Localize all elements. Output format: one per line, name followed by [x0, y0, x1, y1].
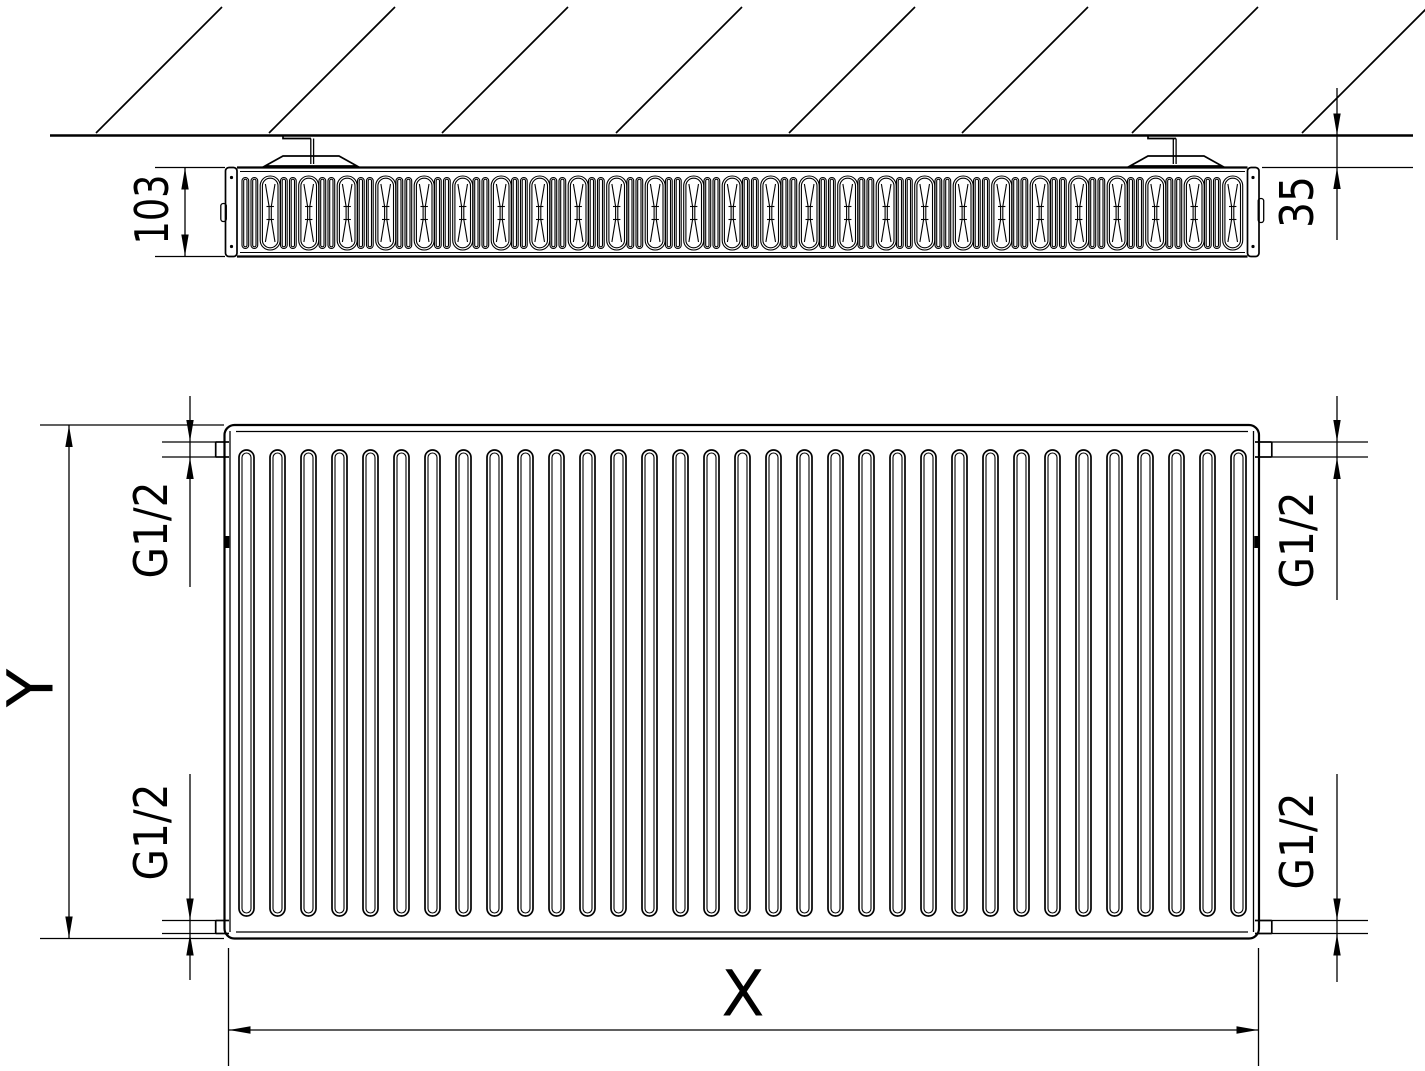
fin-weld-line [1234, 184, 1238, 207]
water-channel-oval [743, 178, 750, 249]
corrugation-outer [735, 450, 750, 916]
corrugation-inner [521, 453, 530, 913]
top-view-right-endcap [1248, 168, 1264, 257]
fin-oval-inner [1186, 178, 1202, 248]
water-channel-oval-inner [1206, 179, 1209, 247]
wall-clearance-label: 35 [1270, 176, 1324, 228]
fin-weld-line [1035, 184, 1039, 207]
corrugation-inner [335, 453, 344, 913]
fin-oval [953, 176, 973, 250]
corrugation-inner [242, 453, 251, 913]
water-channel-oval-inner [244, 179, 247, 247]
corrugation-inner [800, 453, 809, 913]
water-channel-oval [974, 178, 981, 249]
fin-weld-line [766, 184, 770, 207]
fin-oval [1069, 176, 1089, 250]
corrugation-inner [1141, 453, 1150, 913]
corrugation-inner [1203, 453, 1212, 913]
corrugation-outer [239, 450, 254, 916]
width-label: X [721, 958, 764, 1031]
fin-oval [414, 176, 434, 250]
dim-wall-clearance: 35 [1262, 88, 1413, 240]
water-channel-oval-inner [629, 179, 632, 247]
hatch-line [1132, 7, 1258, 133]
fin-oval [530, 176, 550, 250]
fin-oval [1146, 176, 1166, 250]
water-channel-oval-inner [706, 179, 709, 247]
water-channel-oval [1021, 178, 1028, 249]
water-channel-oval [550, 178, 557, 249]
fin-oval-inner [840, 178, 856, 248]
corrugations-group [239, 450, 1246, 916]
water-channel-oval-inner [1052, 179, 1055, 247]
water-channel-oval [358, 178, 365, 249]
fin-weld-line [733, 220, 737, 243]
hatch-line [442, 7, 568, 133]
fin-weld-line [1189, 184, 1193, 207]
fin-weld-line [650, 184, 654, 207]
water-channel-oval-inner [869, 179, 872, 247]
height-label: Y [0, 668, 68, 708]
fin-oval [1184, 176, 1204, 250]
fin-weld-line [650, 220, 654, 243]
fin-weld-line [1041, 184, 1045, 207]
fin-weld-line [958, 184, 962, 207]
fin-oval-inner [378, 178, 394, 248]
fin-weld-line [1080, 184, 1084, 207]
water-channel-oval-inner [1100, 179, 1103, 247]
fin-weld-line [381, 184, 385, 207]
dim-depth: 103 [125, 168, 225, 257]
corrugation-outer [611, 450, 626, 916]
fin-weld-line [1195, 184, 1199, 207]
fin-weld-line [387, 184, 391, 207]
dim-thread-bottom-right: G1/2 [1270, 774, 1368, 982]
water-channel-oval [598, 178, 605, 249]
fin-weld-line [964, 184, 968, 207]
water-channel-oval [251, 178, 258, 249]
fin-oval-inner [686, 178, 702, 248]
water-channel-oval [521, 178, 528, 249]
endcap-outline [1248, 168, 1260, 257]
fin-weld-line [958, 220, 962, 243]
thread-label-bottom-left: G1/2 [124, 784, 178, 881]
corrugation-inner [366, 453, 375, 913]
fin-weld-line [458, 220, 462, 243]
fin-weld-line [843, 184, 847, 207]
water-channel-oval-inner [282, 179, 285, 247]
water-channel-oval-inner [1014, 179, 1017, 247]
water-channel-oval-inner [667, 179, 670, 247]
water-channel-oval-inner [898, 179, 901, 247]
fin-weld-line [502, 184, 506, 207]
corrugation-inner [552, 453, 561, 913]
corrugation-outer [1231, 450, 1246, 916]
water-channel-oval-inner [1177, 179, 1180, 247]
fin-weld-line [1041, 220, 1045, 243]
fin-oval-inner [917, 178, 933, 248]
fin-weld-line [381, 220, 385, 243]
water-channel-oval-inner [860, 179, 863, 247]
water-channel-oval-inner [552, 179, 555, 247]
water-channel-oval [589, 178, 596, 249]
water-channel-oval-inner [599, 179, 602, 247]
fin-weld-line [695, 184, 699, 207]
fin-weld-line [1074, 220, 1078, 243]
fin-oval-inner [647, 178, 663, 248]
fin-weld-line [849, 184, 853, 207]
water-channel-oval [1205, 178, 1212, 249]
fin-weld-line [573, 220, 577, 243]
corrugation-inner [1048, 453, 1057, 913]
dim-width: X [229, 948, 1259, 1066]
corrugation-outer [921, 450, 936, 916]
water-channel-oval [281, 178, 288, 249]
fin-weld-line [1151, 220, 1155, 243]
arrowhead-up [181, 168, 188, 190]
fin-weld-line [310, 184, 314, 207]
fin-oval-inner [1032, 178, 1048, 248]
corrugation-inner [583, 453, 592, 913]
fin-oval [992, 176, 1012, 250]
water-channel-oval [666, 178, 673, 249]
corrugation-outer [363, 450, 378, 916]
fin-oval [761, 176, 781, 250]
water-channel-oval [858, 178, 865, 249]
water-channel-oval [897, 178, 904, 249]
water-channel-oval-inner [398, 179, 401, 247]
fin-oval-inner [493, 178, 509, 248]
fin-weld-line [926, 220, 930, 243]
fin-oval-inner [763, 178, 779, 248]
water-channel-oval [906, 178, 913, 249]
fin-weld-line [1157, 184, 1161, 207]
fin-weld-line [1228, 220, 1232, 243]
arrowhead-down [65, 917, 72, 939]
water-channel-oval-inner [475, 179, 478, 247]
water-channel-oval-inner [937, 179, 940, 247]
hatch-line [269, 7, 395, 133]
water-channel-oval-inner [590, 179, 593, 247]
fin-weld-line [419, 184, 423, 207]
water-channel-oval [1175, 178, 1182, 249]
water-channel-oval [627, 178, 634, 249]
fin-weld-line [1035, 220, 1039, 243]
water-channel-oval [752, 178, 759, 249]
fin-oval [260, 176, 280, 250]
endcap-outline [226, 168, 238, 257]
fin-oval-inner [301, 178, 317, 248]
fin-weld-line [458, 184, 462, 207]
corrugation-outer [642, 450, 657, 916]
corrugation-outer [1169, 450, 1184, 916]
water-channel-oval-inner [821, 179, 824, 247]
fin-weld-line [1112, 220, 1116, 243]
water-channel-oval [1137, 178, 1144, 249]
fin-weld-line [348, 184, 352, 207]
fin-weld-line [612, 220, 616, 243]
fin-weld-line [265, 184, 269, 207]
front-view-radiator-body [225, 425, 1260, 939]
fin-weld-line [1003, 220, 1007, 243]
fin-weld-line [496, 220, 500, 243]
fin-oval-inner [994, 178, 1010, 248]
corrugation-inner [397, 453, 406, 913]
fin-weld-line [772, 220, 776, 243]
arrowhead-down [1333, 114, 1340, 136]
fin-weld-line [804, 220, 808, 243]
water-channel-oval-inner [330, 179, 333, 247]
stub-top-left [216, 442, 229, 457]
water-channel-oval-inner [984, 179, 987, 247]
arrowhead-up [186, 458, 193, 480]
water-channel-oval-inner [359, 179, 362, 247]
fin-weld-line [579, 220, 583, 243]
water-channel-oval [675, 178, 682, 249]
fin-oval [645, 176, 665, 250]
fin-weld-line [387, 220, 391, 243]
fin-weld-line [881, 220, 885, 243]
water-channel-oval [1128, 178, 1135, 249]
fin-weld-line [1003, 184, 1007, 207]
water-channel-oval-inner [561, 179, 564, 247]
corrugation-inner [893, 453, 902, 913]
fin-weld-line [1080, 220, 1084, 243]
endcap-rivet [1251, 176, 1254, 179]
fin-oval-inner [570, 178, 586, 248]
fin-weld-line [1151, 184, 1155, 207]
corrugation-inner [1017, 453, 1026, 913]
fin-oval [684, 176, 704, 250]
corrugation-inner [986, 453, 995, 913]
fin-oval-inner [455, 178, 471, 248]
corrugation-outer [1200, 450, 1215, 916]
fin-weld-line [612, 184, 616, 207]
water-channel-oval-inner [1129, 179, 1132, 247]
corrugation-inner [924, 453, 933, 913]
fin-weld-line [1074, 184, 1078, 207]
corrugation-outer [332, 450, 347, 916]
fin-oval-inner [262, 178, 278, 248]
corrugation-outer [952, 450, 967, 916]
fin-weld-line [727, 220, 731, 243]
corrugation-outer [487, 450, 502, 916]
water-channel-oval [1012, 178, 1019, 249]
corrugation-outer [270, 450, 285, 916]
stub-bottom-left [216, 921, 229, 934]
fin-weld-line [535, 184, 539, 207]
fin-weld-line [573, 184, 577, 207]
fin-weld-line [656, 184, 660, 207]
fin-weld-line [689, 184, 693, 207]
fin-weld-line [425, 220, 429, 243]
corrugation-inner [1079, 453, 1088, 913]
fin-oval-inner [724, 178, 740, 248]
corrugation-outer [301, 450, 316, 916]
water-channel-oval-inner [1091, 179, 1094, 247]
corrugation-outer [549, 450, 564, 916]
water-channel-oval [1166, 178, 1173, 249]
water-channel-oval [1051, 178, 1058, 249]
fin-weld-line [541, 220, 545, 243]
water-channel-oval [405, 178, 412, 249]
water-channel-oval [512, 178, 519, 249]
top-view-left-endcap [221, 168, 237, 257]
fin-weld-line [419, 220, 423, 243]
thread-label-top-right: G1/2 [1270, 492, 1324, 589]
fin-weld-line [535, 220, 539, 243]
water-channel-oval-inner [744, 179, 747, 247]
fin-weld-line [310, 220, 314, 243]
fin-weld-line [887, 220, 891, 243]
fin-weld-line [926, 184, 930, 207]
water-channel-oval-inner [291, 179, 294, 247]
fin-weld-line [342, 220, 346, 243]
corrugation-outer [518, 450, 533, 916]
fin-weld-line [304, 184, 308, 207]
water-channel-oval [983, 178, 990, 249]
fin-weld-line [348, 220, 352, 243]
left-seam-tab [225, 536, 230, 548]
fin-oval [491, 176, 511, 250]
water-channel-oval-inner [253, 179, 256, 247]
water-channel-oval [396, 178, 403, 249]
water-channel-oval [242, 178, 249, 249]
fin-oval [1223, 176, 1243, 250]
fin-oval [1107, 176, 1127, 250]
depth-label: 103 [125, 175, 179, 245]
corrugation-inner [1234, 453, 1243, 913]
fin-weld-line [1118, 220, 1122, 243]
water-channel-oval [713, 178, 720, 249]
fin-weld-line [695, 220, 699, 243]
water-channel-oval-inner [975, 179, 978, 247]
fin-weld-line [502, 220, 506, 243]
water-channel-oval [704, 178, 711, 249]
water-channel-oval [935, 178, 942, 249]
hatch-line [1302, 7, 1425, 133]
fin-oval-inner [955, 178, 971, 248]
fin-weld-line [804, 184, 808, 207]
water-channel-oval-inner [946, 179, 949, 247]
fin-weld-line [772, 184, 776, 207]
fin-oval [453, 176, 473, 250]
fin-oval-inner [339, 178, 355, 248]
fin-oval-inner [416, 178, 432, 248]
right-seam-tab [1254, 536, 1259, 548]
top-view-fin-pattern [242, 176, 1243, 250]
front-view: Y G1/2 G1/2 G1/2 [0, 396, 1368, 1066]
corrugation-inner [738, 453, 747, 913]
fin-weld-line [496, 184, 500, 207]
fin-weld-line [342, 184, 346, 207]
corrugation-outer [1045, 450, 1060, 916]
fin-oval [876, 176, 896, 250]
fin-oval-inner [609, 178, 625, 248]
corrugation-outer [673, 450, 688, 916]
fin-weld-line [579, 184, 583, 207]
corrugation-outer [704, 450, 719, 916]
fin-weld-line [541, 184, 545, 207]
water-channel-oval [1098, 178, 1105, 249]
mounting-bracket-right [1130, 136, 1222, 167]
fin-weld-line [1189, 220, 1193, 243]
water-channel-oval-inner [368, 179, 371, 247]
fin-oval [299, 176, 319, 250]
arrowhead-down [1333, 899, 1340, 921]
water-channel-oval [867, 178, 874, 249]
fin-weld-line [1228, 184, 1232, 207]
water-channel-oval [636, 178, 643, 249]
corrugation-outer [425, 450, 440, 916]
water-channel-oval [944, 178, 951, 249]
fin-oval [915, 176, 935, 250]
corrugation-inner [304, 453, 313, 913]
water-channel-oval-inner [1168, 179, 1171, 247]
fin-oval [337, 176, 357, 250]
fin-weld-line [997, 184, 1001, 207]
fin-weld-line [810, 220, 814, 243]
fin-oval [838, 176, 858, 250]
water-channel-oval-inner [436, 179, 439, 247]
water-channel-oval-inner [830, 179, 833, 247]
water-channel-oval-inner [792, 179, 795, 247]
fin-oval [799, 176, 819, 250]
fin-weld-line [656, 220, 660, 243]
corrugation-outer [456, 450, 471, 916]
arrowhead-down [186, 899, 193, 921]
wall-hatching [96, 7, 1425, 133]
arrowhead-left [229, 1026, 251, 1033]
endcap-rivet [230, 176, 233, 179]
corrugation-outer [580, 450, 595, 916]
hatch-line [962, 7, 1088, 133]
corrugation-outer [1014, 450, 1029, 916]
water-channel-oval [367, 178, 374, 249]
arrowhead-down [181, 235, 188, 257]
corrugation-outer [1076, 450, 1091, 916]
corrugation-outer [1138, 450, 1153, 916]
water-channel-oval [319, 178, 326, 249]
fin-weld-line [464, 220, 468, 243]
fin-weld-line [265, 220, 269, 243]
fin-oval [376, 176, 396, 250]
fin-weld-line [920, 184, 924, 207]
fin-oval [722, 176, 742, 250]
corrugation-outer [797, 450, 812, 916]
corrugation-outer [859, 450, 874, 916]
arrowhead-up [1333, 934, 1340, 956]
fin-weld-line [1112, 184, 1116, 207]
water-channel-oval [1060, 178, 1067, 249]
water-channel-oval [781, 178, 788, 249]
fin-weld-line [733, 184, 737, 207]
water-channel-oval-inner [445, 179, 448, 247]
water-channel-oval-inner [407, 179, 410, 247]
endcap-rivet [230, 245, 233, 248]
fin-oval-inner [801, 178, 817, 248]
fin-oval-inner [1225, 178, 1241, 248]
corrugation-outer [1107, 450, 1122, 916]
corrugation-outer [983, 450, 998, 916]
corrugation-inner [614, 453, 623, 913]
fin-weld-line [920, 220, 924, 243]
corrugation-outer [394, 450, 409, 916]
top-view-radiator-body [221, 168, 1264, 257]
dim-thread-bottom-left: G1/2 [124, 774, 216, 980]
hatch-line [96, 7, 222, 133]
top-view: 103 35 [50, 7, 1425, 257]
